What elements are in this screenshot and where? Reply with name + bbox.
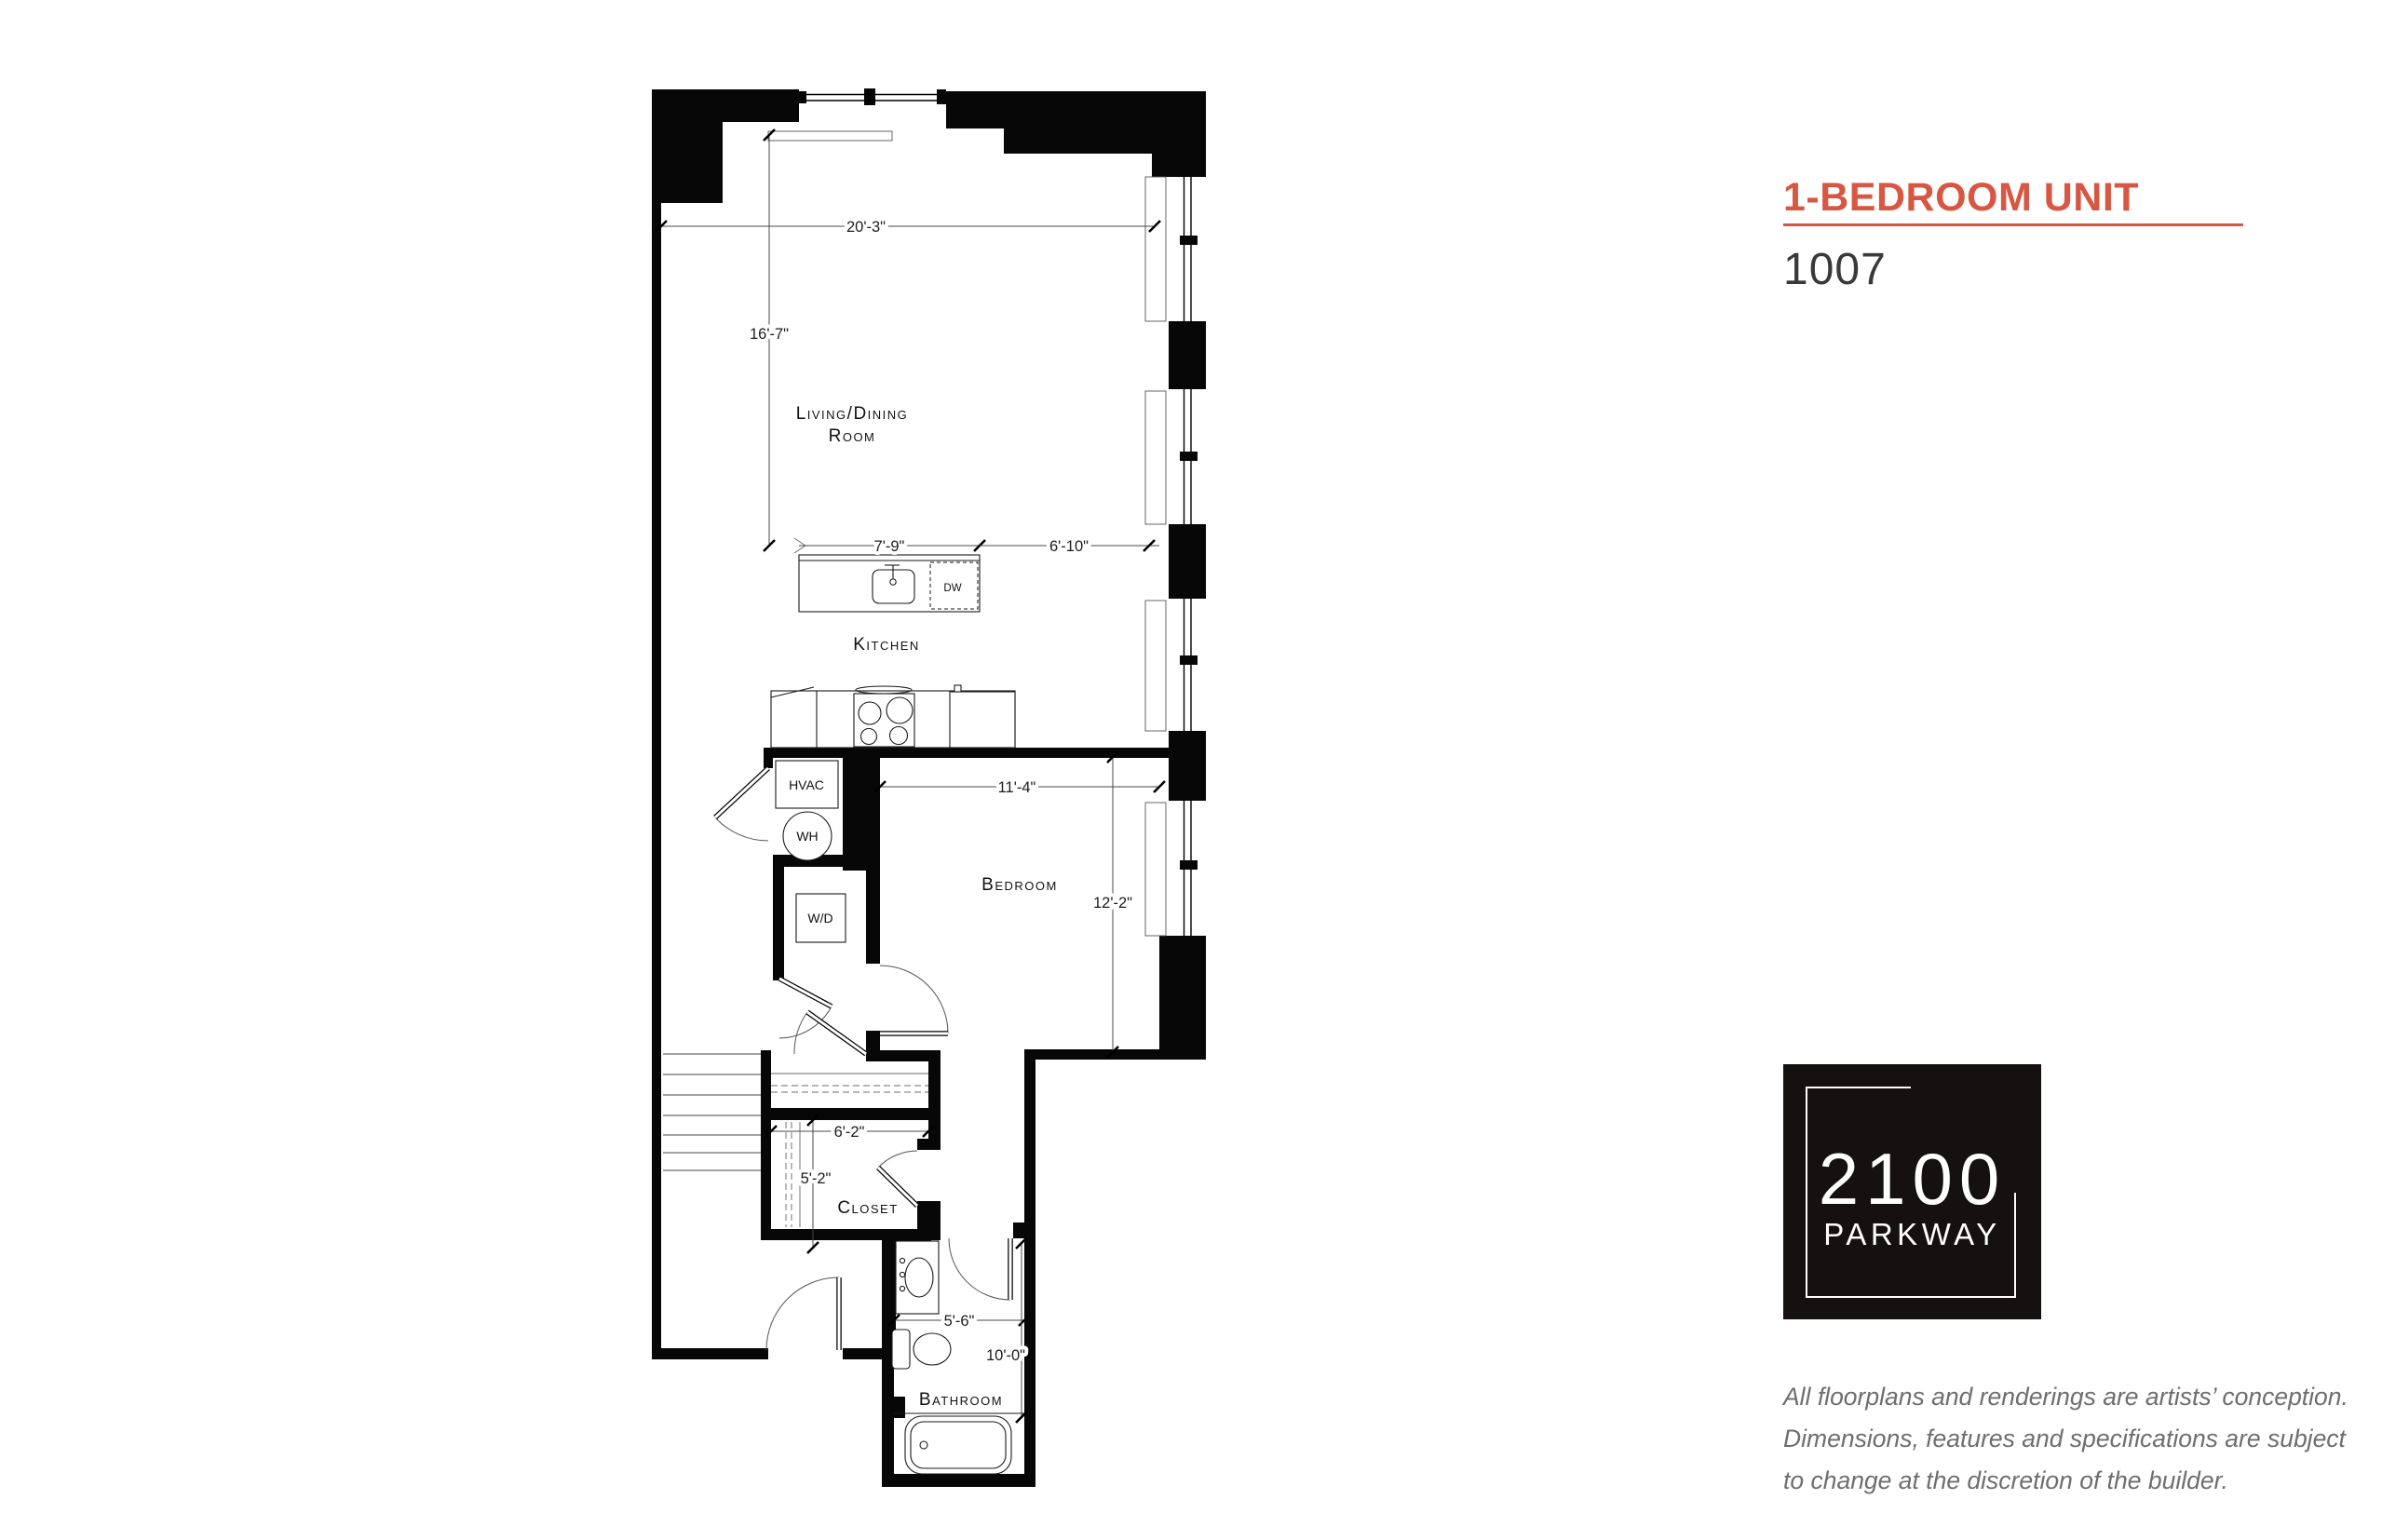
wall-segment	[843, 1348, 896, 1359]
room-label-living-1: Living/Dining	[796, 404, 909, 424]
dim-closet-width: 6'-2"	[834, 1124, 865, 1141]
dim-living-depth: 16'-7"	[750, 326, 789, 343]
room-label-bedroom: Bedroom	[981, 875, 1058, 895]
wall-pillar	[1169, 524, 1206, 599]
disclaimer-line-3: to change at the discretion of the build…	[1783, 1460, 2379, 1502]
room-label-bathroom: Bathroom	[919, 1390, 1003, 1410]
floorplan-drawing: DW HVAC WH W/D	[652, 82, 1229, 1497]
door-arc	[766, 1277, 839, 1350]
page-title: 1-BEDROOM UNIT	[1783, 175, 2139, 221]
kitchen-island: DW	[799, 555, 980, 612]
title-underline	[1783, 223, 2243, 226]
utility-fixtures: HVAC WH W/D	[776, 761, 846, 942]
wall-segment	[652, 89, 799, 122]
logo-line-2100: 2100	[1783, 1142, 2041, 1215]
window-mullion	[1180, 236, 1198, 245]
wall-segment	[761, 1050, 771, 1108]
wall-segment	[882, 1397, 905, 1418]
wall-segment	[652, 122, 723, 203]
window-mullion	[1180, 655, 1198, 665]
window-sill	[1145, 803, 1166, 936]
wall-segment	[1013, 1223, 1024, 1238]
wall-segment	[866, 1031, 880, 1050]
door-arc	[794, 1012, 807, 1054]
logo-frame-bottom	[1806, 1296, 2016, 1298]
room-label-closet: Closet	[837, 1198, 898, 1218]
brand-logo: 2100 PARKWAY	[1783, 1064, 2041, 1319]
kitchen-counter	[771, 685, 1015, 748]
fridge-icon	[950, 692, 1015, 748]
toilet-bowl-icon	[914, 1333, 951, 1365]
window-sill	[1145, 177, 1166, 321]
wall-segment	[882, 1474, 1035, 1487]
disclaimer-line-2: Dimensions, features and specifications …	[1783, 1418, 2379, 1460]
wall-segment	[1004, 128, 1206, 154]
bath-sink-icon	[905, 1258, 933, 1297]
dim-island-width: 7'-9"	[874, 538, 905, 555]
wall-segment	[1152, 154, 1206, 177]
dim-bedroom-width: 11'-4"	[998, 779, 1036, 796]
wall-segment	[917, 1201, 941, 1240]
window-sill	[1145, 601, 1166, 731]
door-arc	[715, 817, 768, 841]
disclaimer-line-1: All floorplans and renderings are artist…	[1783, 1376, 2379, 1418]
floorplan-stairs	[663, 1054, 761, 1170]
door-arc	[878, 1151, 917, 1168]
toilet-tank-icon	[892, 1330, 910, 1369]
wall-segment	[937, 89, 946, 104]
wall-segment	[761, 1108, 941, 1120]
dim-closet-depth: 5'-2"	[801, 1170, 832, 1187]
wall-segment	[1024, 1060, 1035, 1487]
dim-bedroom-depth: 12'-2"	[1093, 895, 1132, 912]
wall-segment	[764, 748, 773, 768]
window-mullion	[1180, 452, 1198, 461]
wall-segment	[773, 855, 784, 980]
wall-pillar	[1159, 936, 1206, 1049]
washer-dryer-label: W/D	[807, 911, 832, 925]
unit-number: 1007	[1783, 244, 1887, 295]
wall-segment	[917, 1139, 941, 1150]
water-heater-label: WH	[796, 829, 818, 844]
wall-segment	[946, 91, 1206, 128]
dim-bathroom-width: 5'-6"	[944, 1313, 975, 1330]
wall-segment	[866, 871, 880, 964]
logo-frame-top	[1806, 1087, 1911, 1088]
room-label-kitchen: Kitchen	[853, 635, 920, 655]
wall-segment	[652, 1348, 768, 1359]
wall-segment	[652, 203, 661, 1359]
floorplan-page: DW HVAC WH W/D	[0, 0, 2382, 1540]
wall-pillar	[1169, 731, 1206, 801]
stove-icon	[854, 694, 914, 747]
wall-pillar	[1169, 321, 1206, 389]
dim-kitchen-clear: 6'-10"	[1049, 538, 1089, 555]
wall-segment	[843, 757, 880, 871]
floorplan-windows	[768, 95, 1198, 937]
wall-segment	[799, 91, 806, 103]
window-sill	[768, 131, 892, 141]
window-mullion	[864, 88, 875, 105]
logo-line-parkway: PARKWAY	[1783, 1219, 2041, 1250]
door-arc	[880, 966, 948, 1033]
window-mullion	[1180, 860, 1198, 870]
faucet-icon	[890, 579, 896, 585]
dishwasher-label: DW	[943, 583, 961, 594]
dim-bathroom-depth: 10'-0"	[986, 1347, 1025, 1364]
dim-living-width: 20'-3"	[846, 219, 886, 236]
door-arc	[949, 1238, 1010, 1300]
fridge-handle	[954, 685, 961, 692]
room-label-living-2: Room	[829, 426, 876, 446]
window-sill	[1145, 391, 1166, 524]
floorplan-dimensions	[656, 129, 1165, 1423]
wall-segment	[764, 748, 1184, 758]
bathtub-inner	[911, 1422, 1006, 1468]
hvac-label: HVAC	[789, 777, 824, 792]
disclaimer-text: All floorplans and renderings are artist…	[1783, 1376, 2379, 1502]
